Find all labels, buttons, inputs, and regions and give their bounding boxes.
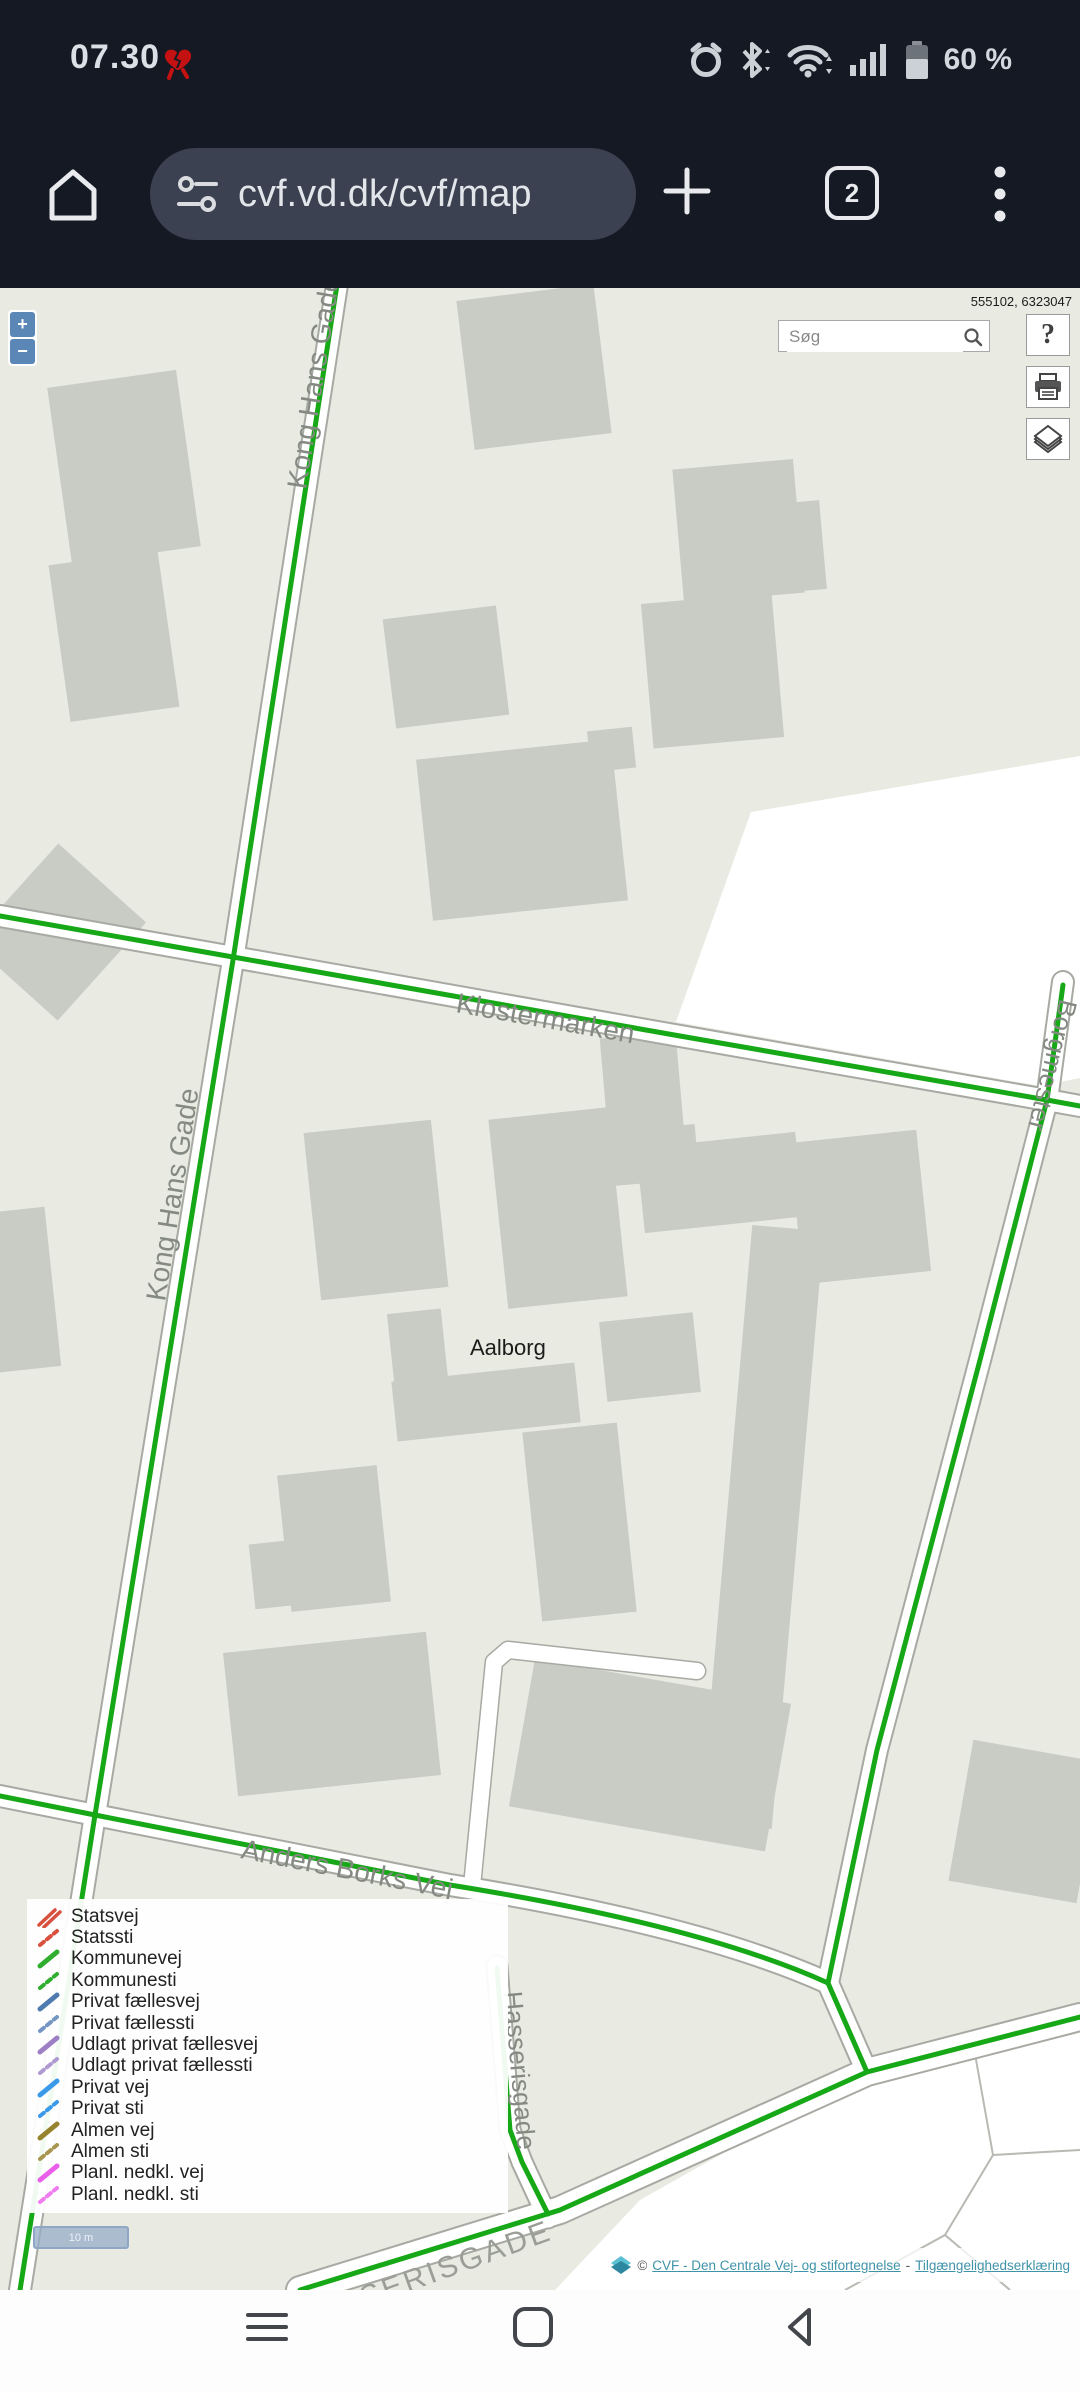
legend-swatch-icon <box>35 2141 65 2163</box>
legend-item-label: Privat fællessti <box>71 2013 195 2035</box>
street-label-anders-borks: Anders Borks Vej <box>239 1833 456 1904</box>
attribution-bar: © CVF - Den Centrale Vej- og stifortegne… <box>602 2248 1080 2282</box>
search-icon[interactable] <box>963 327 983 347</box>
legend-swatch-icon <box>35 2034 65 2056</box>
legend-item-label: Privat sti <box>71 2098 144 2120</box>
legend-item-label: Udlagt privat fællessti <box>71 2055 253 2077</box>
legend-swatch-icon <box>35 2120 65 2142</box>
attribution-separator: - <box>906 2258 911 2273</box>
home-button[interactable] <box>42 160 104 230</box>
legend-item: Udlagt privat fællessti <box>35 2056 508 2077</box>
print-button[interactable] <box>1026 366 1070 408</box>
legend-item-label: Statssti <box>71 1927 133 1949</box>
search-box[interactable] <box>778 320 990 352</box>
home-nav-button[interactable] <box>510 2304 556 2350</box>
legend-item: Planl. nedkl. vej <box>35 2163 508 2184</box>
browser-toolbar: cvf.vd.dk/cvf/map 2 <box>0 100 1080 288</box>
clock-time: 07.30 <box>70 38 160 77</box>
legend-swatch-icon <box>35 2184 65 2206</box>
legend-item-label: Almen vej <box>71 2120 154 2142</box>
copyright-mark: © <box>637 2258 647 2273</box>
legend-item-label: Statsvej <box>71 1906 139 1928</box>
legend-swatch-icon <box>35 1948 65 1970</box>
battery-icon <box>904 40 930 80</box>
legend-item: Kommunevej <box>35 1949 508 1970</box>
legend-item-label: Planl. nedkl. sti <box>71 2184 199 2206</box>
legend-swatch-icon <box>35 2055 65 2077</box>
site-settings-icon[interactable] <box>176 172 220 216</box>
system-nav-bar <box>0 2290 1080 2392</box>
legend-item: Kommunesti <box>35 1970 508 1991</box>
layers-button[interactable] <box>1026 418 1070 460</box>
legend-swatch-icon <box>35 2098 65 2120</box>
legend-item: Privat fællessti <box>35 2013 508 2034</box>
bluetooth-icon <box>738 41 772 79</box>
legend-item: Statsvej <box>35 1906 508 1927</box>
legend-item-label: Privat vej <box>71 2077 149 2099</box>
street-label-klostermarken: Klostermarken <box>454 987 637 1049</box>
legend-item-label: Planl. nedkl. vej <box>71 2162 204 2184</box>
legend-item-label: Udlagt privat fællesvej <box>71 2034 258 2056</box>
legend-item: Privat sti <box>35 2099 508 2120</box>
zoom-controls: + − <box>8 310 37 366</box>
legend-item: Privat vej <box>35 2077 508 2098</box>
layers-icon <box>1032 424 1064 454</box>
legend-item: Udlagt privat fællesvej <box>35 2034 508 2055</box>
signal-bars-icon <box>848 41 890 79</box>
legend-item: Statssti <box>35 1927 508 1948</box>
tab-count: 2 <box>845 178 859 209</box>
help-glyph: ? <box>1041 319 1055 351</box>
battery-percent: 60 % <box>944 43 1012 77</box>
accessibility-link[interactable]: Tilgængelighedserklæring <box>915 2258 1070 2273</box>
back-button[interactable] <box>778 2304 824 2350</box>
legend-swatch-icon <box>35 1970 65 1992</box>
wifi-icon <box>786 41 834 79</box>
cvf-logo-icon <box>610 2255 632 2275</box>
address-bar[interactable]: cvf.vd.dk/cvf/map <box>150 148 636 240</box>
recent-apps-button[interactable] <box>244 2304 290 2350</box>
legend-swatch-icon <box>35 2162 65 2184</box>
help-button[interactable]: ? <box>1026 314 1070 356</box>
status-bar: 07.30 <box>0 0 1080 100</box>
zoom-in-glyph: + <box>17 314 28 335</box>
legend-swatch-icon <box>35 2013 65 2035</box>
legend-item-label: Privat fællesvej <box>71 1991 200 2013</box>
city-label: Aalborg <box>470 1335 546 1360</box>
legend-item-label: Kommunesti <box>71 1970 177 1992</box>
tab-switcher-button[interactable]: 2 <box>824 162 880 224</box>
scale-bar: 10 m <box>33 2226 129 2249</box>
legend-item: Privat fællesvej <box>35 1992 508 2013</box>
url-text[interactable]: cvf.vd.dk/cvf/map <box>238 173 532 216</box>
map-legend: StatsvejStatsstiKommunevejKommunestiPriv… <box>27 1899 508 2213</box>
legend-swatch-icon <box>35 1927 65 1949</box>
legend-item: Planl. nedkl. sti <box>35 2184 508 2205</box>
zoom-out-glyph: − <box>17 341 28 362</box>
zoom-in-button[interactable]: + <box>10 312 35 337</box>
street-label-kong-hans-top: Kong Hans Gade <box>281 288 345 491</box>
legend-swatch-icon <box>35 1906 65 1928</box>
printer-icon <box>1033 373 1063 401</box>
zoom-out-button[interactable]: − <box>10 339 35 364</box>
search-input[interactable] <box>787 322 963 352</box>
legend-item-label: Almen sti <box>71 2141 149 2163</box>
notification-heartbreak-icon <box>158 44 198 84</box>
cursor-coordinates: 555102, 6323047 <box>971 294 1072 309</box>
scale-bar-label: 10 m <box>69 2232 93 2244</box>
map-canvas[interactable]: Kong Hans Gade Kong Hans Gade Klostermar… <box>0 288 1080 2290</box>
legend-swatch-icon <box>35 1991 65 2013</box>
menu-button[interactable] <box>984 164 1016 224</box>
alarm-icon <box>688 41 724 79</box>
legend-item: Almen vej <box>35 2120 508 2141</box>
new-tab-button[interactable] <box>660 158 714 224</box>
legend-item: Almen sti <box>35 2141 508 2162</box>
legend-swatch-icon <box>35 2077 65 2099</box>
cvf-link[interactable]: CVF - Den Centrale Vej- og stifortegnels… <box>652 2258 900 2273</box>
legend-item-label: Kommunevej <box>71 1948 182 1970</box>
